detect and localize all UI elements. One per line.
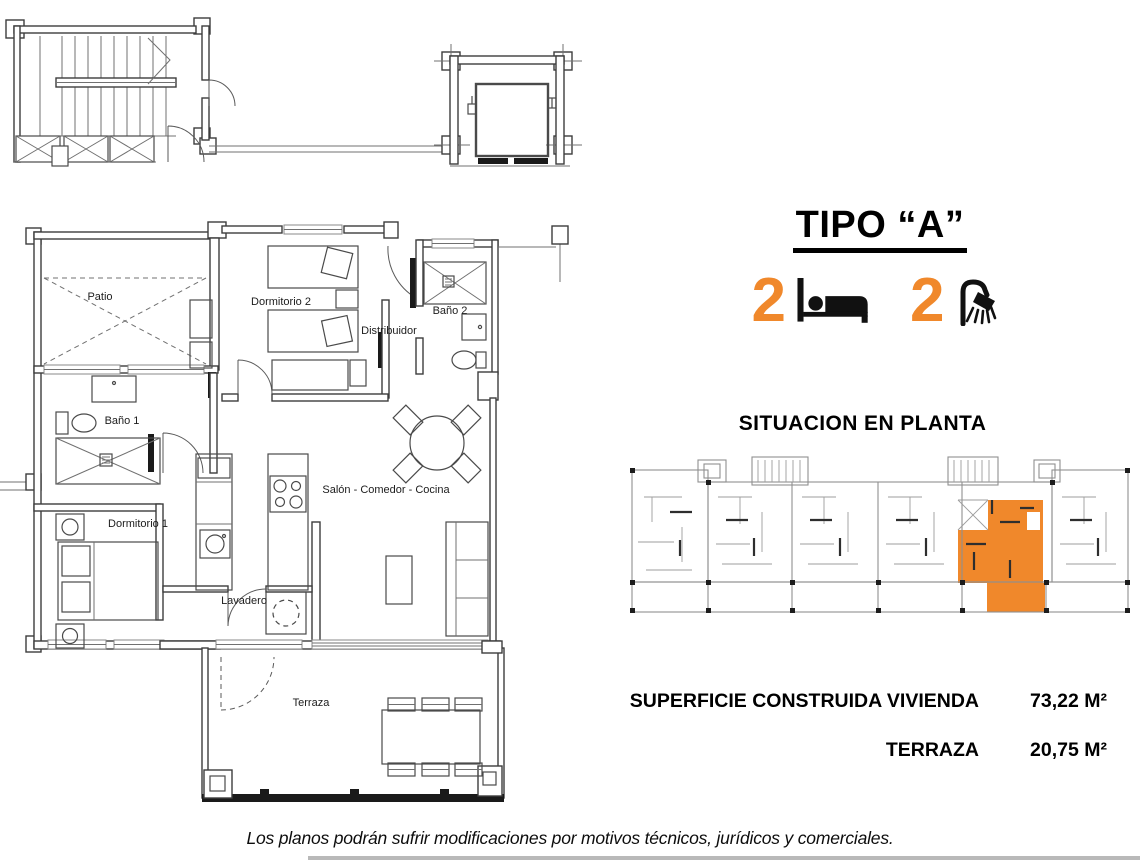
floor-plan: Patio Dormitorio 2 Baño 2 Distribuidor B… (0, 0, 600, 820)
surface-table: SUPERFICIE CONSTRUIDA VIVIENDA 73,22 M² … (630, 690, 1107, 762)
room-label-dormitorio2: Dormitorio 2 (251, 296, 311, 308)
surface-value: 73,22 M² (1017, 690, 1107, 713)
double-bed (56, 514, 158, 648)
terrace (202, 641, 504, 802)
room-label-bano1: Baño 1 (105, 415, 140, 427)
bathrooms-feature: 2 (910, 276, 1002, 326)
disclaimer-text: Los planos podrán sufrir modificaciones … (0, 828, 1140, 849)
situation-piers (630, 468, 1130, 613)
room-label-bano2: Baño 2 (433, 305, 468, 317)
bedroom-count: 2 (752, 276, 786, 326)
elevator (434, 44, 582, 166)
shower-icon (954, 276, 1002, 326)
surface-row-terraza: TERRAZA 20,75 M² (886, 739, 1107, 762)
twin-beds (268, 246, 366, 390)
bed-icon (796, 278, 874, 324)
living-furniture (386, 405, 488, 636)
laundry (266, 592, 306, 634)
room-label-terraza: Terraza (293, 697, 331, 709)
bottom-divider-bar (308, 856, 1140, 860)
patio-room (44, 278, 212, 402)
unit-type-title: TIPO “A” (793, 206, 968, 253)
bathroom-count: 2 (910, 276, 944, 326)
surface-label: SUPERFICIE CONSTRUIDA VIVIENDA (630, 690, 979, 713)
situation-plan (622, 452, 1140, 630)
stairwell (6, 18, 446, 166)
bedrooms-feature: 2 (752, 276, 874, 326)
unit-type-title-wrap: TIPO “A” (760, 206, 1000, 253)
surface-value: 20,75 M² (1017, 739, 1107, 762)
room-label-dormitorio1: Dormitorio 1 (108, 518, 168, 530)
situation-heading: SITUACION EN PLANTA (640, 412, 1085, 436)
room-label-lavadero: Lavadero (221, 595, 267, 607)
plan-sheet: Patio Dormitorio 2 Baño 2 Distribuidor B… (0, 0, 1140, 860)
feature-icons-row: 2 2 (742, 276, 1012, 326)
storage-boxes (16, 136, 154, 166)
kitchen (196, 454, 308, 590)
surface-row-vivienda: SUPERFICIE CONSTRUIDA VIVIENDA 73,22 M² (630, 690, 1107, 713)
surface-label: TERRAZA (886, 739, 979, 762)
room-label-salon: Salón - Comedor - Cocina (322, 484, 450, 496)
room-label-distribuidor: Distribuidor (361, 325, 417, 337)
room-label-patio: Patio (87, 291, 112, 303)
apartment-plan: Patio Dormitorio 2 Baño 2 Distribuidor B… (0, 222, 568, 802)
